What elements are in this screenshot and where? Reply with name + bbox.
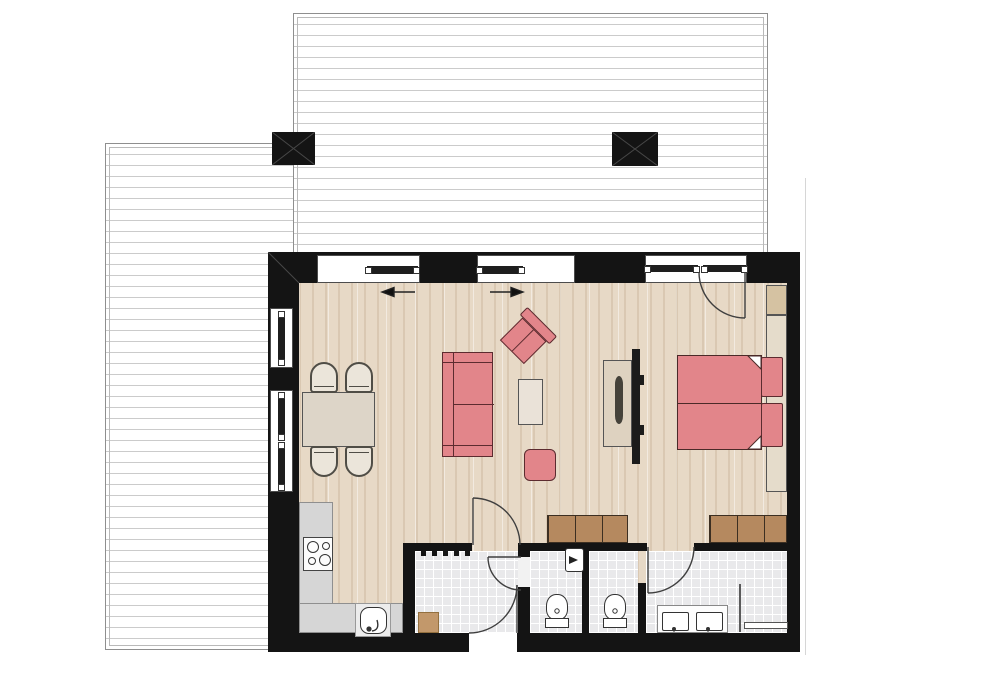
pouf <box>524 449 556 481</box>
radiator-tick <box>421 551 426 556</box>
burner <box>307 541 319 553</box>
mattress-seam <box>678 403 761 404</box>
toilet-tank <box>545 618 569 628</box>
wc-sink <box>565 548 584 572</box>
stove <box>303 537 333 571</box>
sofa-armrest <box>443 445 492 446</box>
bedside-cabinet <box>766 285 787 315</box>
toilet <box>545 594 569 628</box>
tv-mount <box>640 425 644 435</box>
dining-chair <box>345 362 373 393</box>
dining-chair <box>310 362 338 393</box>
armchair-body <box>489 301 563 375</box>
vanity-sink <box>696 612 723 631</box>
armchair <box>500 312 552 364</box>
wardrobe-right <box>709 515 787 543</box>
tv <box>632 349 640 464</box>
toilet-tank <box>603 618 627 628</box>
burner <box>319 554 331 566</box>
burner <box>308 557 316 565</box>
radiator-tick <box>432 551 437 556</box>
double-bed <box>677 355 762 450</box>
wardrobe-left <box>547 515 628 543</box>
pillow <box>761 403 783 447</box>
toilet-bowl <box>604 594 626 620</box>
radiator-tick <box>443 551 448 556</box>
dining-chair <box>345 446 373 477</box>
dining-chair <box>310 446 338 477</box>
burner <box>322 542 330 550</box>
dining-table <box>302 392 375 447</box>
toilet-bowl <box>546 594 568 620</box>
sink-basin <box>360 607 387 634</box>
cabinet-decor <box>615 376 623 424</box>
floor-plan <box>0 0 1000 681</box>
sofa-armrest <box>443 362 492 363</box>
door-mat <box>418 612 439 633</box>
tv-mount <box>640 375 644 385</box>
radiator-tick <box>454 551 459 556</box>
kitchen-sink <box>355 603 391 637</box>
towel-bar <box>744 622 788 629</box>
sofa <box>442 352 493 457</box>
radiator-tick <box>465 551 470 556</box>
sofa-cushion-seam <box>454 404 494 405</box>
pillow <box>761 357 783 397</box>
coffee-table <box>518 379 543 425</box>
toilet <box>603 594 627 628</box>
double-vanity <box>657 605 728 633</box>
vanity-sink <box>662 612 689 631</box>
